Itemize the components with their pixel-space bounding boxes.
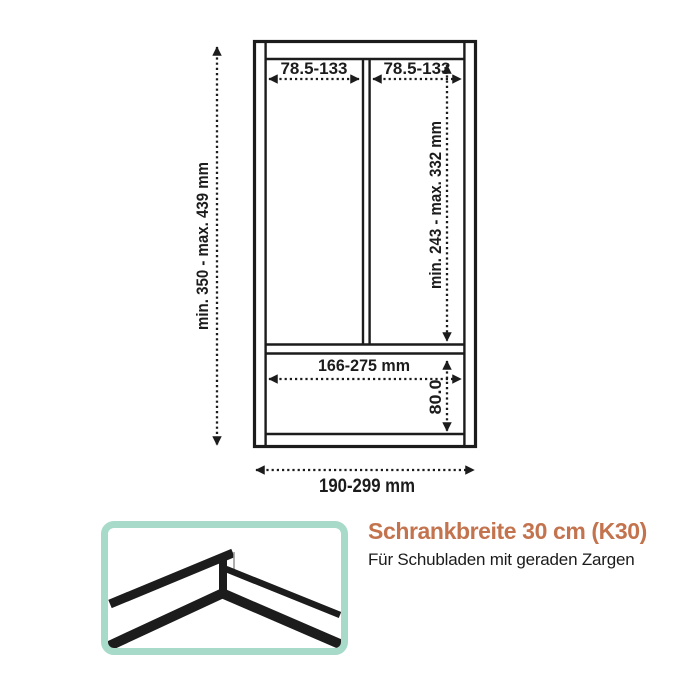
divider-corner-photo-frame	[101, 521, 348, 655]
caption-block: Schrankbreite 30 cm (K30) Für Schubladen…	[368, 518, 688, 570]
dim-lower-compartment-depth: 80.0	[426, 361, 447, 431]
dim-label-lower-depth: 80.0	[426, 380, 445, 415]
dim-upper-compartment-depth: min. 243 - max. 332 mm	[426, 65, 447, 341]
caption-title: Schrankbreite 30 cm (K30)	[368, 518, 688, 544]
dim-label-overall-depth: min. 350 - max. 439 mm	[193, 162, 212, 330]
dimension-diagram: 78.5-133 78.5-133 min. 350 - max. 439 mm…	[0, 0, 700, 520]
dim-overall-depth: min. 350 - max. 439 mm	[193, 47, 217, 445]
dim-compartment-width-left: 78.5-133	[269, 59, 359, 79]
dim-label-lower-width: 166-275 mm	[318, 356, 410, 375]
dim-lower-compartment-width: 166-275 mm	[269, 356, 461, 379]
product-dimension-sheet: 78.5-133 78.5-133 min. 350 - max. 439 mm…	[0, 0, 700, 700]
dim-label-total-width: 190-299 mm	[319, 476, 415, 497]
dim-label-compartment-left: 78.5-133	[281, 59, 348, 78]
divider-corner-illustration	[108, 528, 341, 648]
dim-label-compartment-right: 78.5-133	[384, 59, 451, 78]
dim-total-width: 190-299 mm	[256, 470, 474, 497]
dim-label-upper-depth: min. 243 - max. 332 mm	[426, 121, 445, 289]
caption-subtitle: Für Schubladen mit geraden Zargen	[368, 550, 688, 570]
